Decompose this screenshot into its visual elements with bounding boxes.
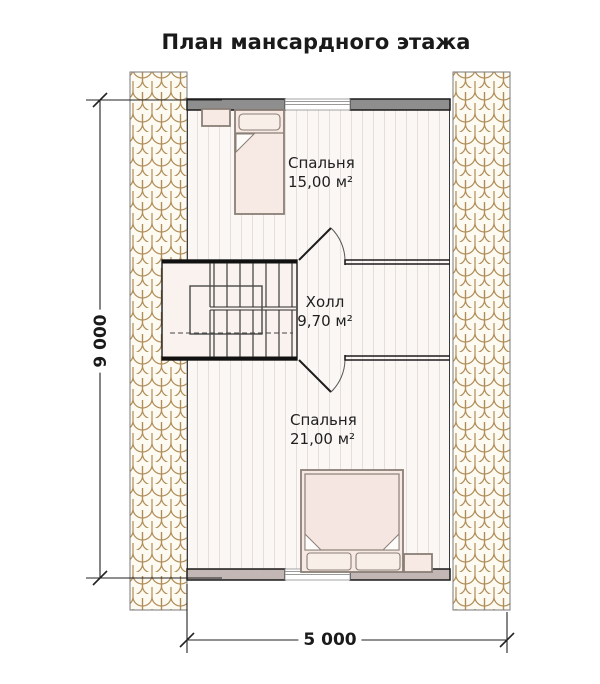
floor-plan-page: План мансардного этажа Спальня 15,00 м² …	[0, 0, 600, 684]
room-label-bedroom-top: Спальня 15,00 м²	[288, 154, 355, 192]
room-label-hall: Холл 9,70 м²	[285, 293, 365, 331]
nightstand-bottom	[404, 554, 432, 572]
floor-plan-drawing	[0, 0, 600, 684]
double-bed-blanket	[305, 474, 399, 550]
room-name: Спальня	[288, 154, 355, 173]
pillow-left	[307, 553, 351, 570]
room-area: 9,70 м²	[285, 312, 365, 331]
room-area: 15,00 м²	[288, 173, 355, 192]
room-name: Холл	[285, 293, 365, 312]
pillow-single	[239, 114, 280, 130]
dimension-label-vertical: 9 000	[91, 309, 111, 372]
right-roof-shingles	[453, 72, 510, 610]
page-title: План мансардного этажа	[32, 30, 600, 54]
room-name: Спальня	[290, 411, 357, 430]
dimension-label-horizontal: 5 000	[298, 630, 361, 650]
room-label-bedroom-bottom: Спальня 21,00 м²	[290, 411, 357, 449]
pillow-right	[356, 553, 400, 570]
window-top	[285, 99, 350, 110]
nightstand-top	[202, 109, 230, 126]
room-area: 21,00 м²	[290, 430, 357, 449]
staircase	[162, 260, 297, 360]
